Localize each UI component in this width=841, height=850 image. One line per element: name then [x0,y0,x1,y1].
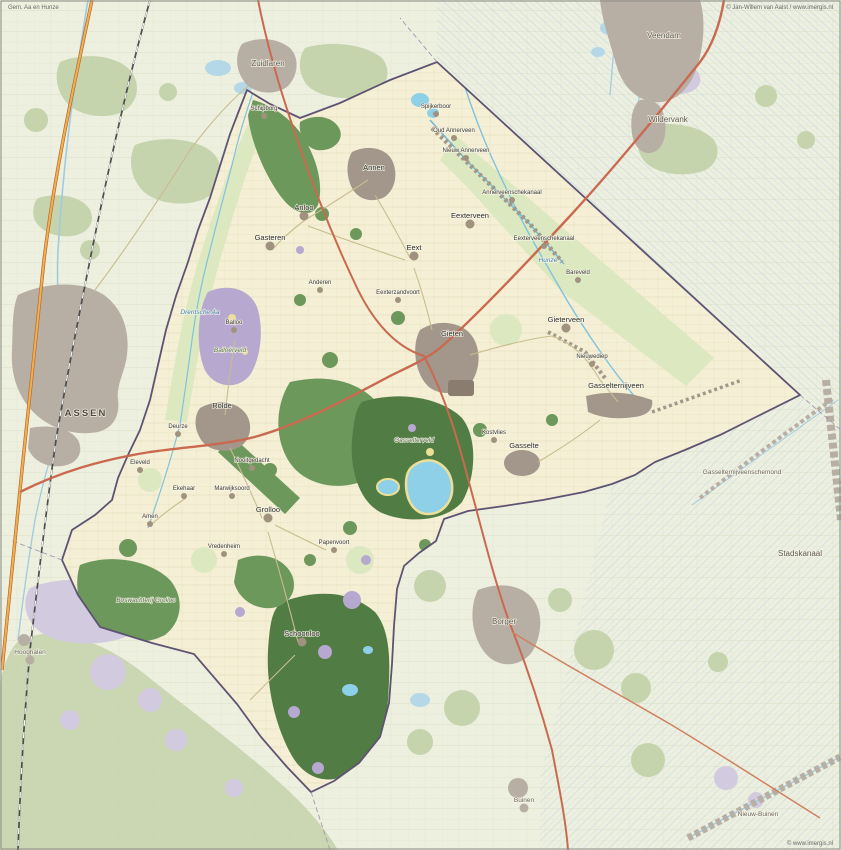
settlement-ekehaar [181,493,187,499]
settlement-marwijksoord [229,493,235,499]
label-drentsche-aa: Drentsche Aa [180,309,220,316]
town-gieten-industry [448,380,474,396]
label-kostvlies: Kostvlies [482,430,506,436]
settlement-anloo [300,212,309,221]
label-wildervank: Wildervank [648,115,689,124]
settlement-eleveld [137,467,143,473]
label-anderen: Anderen [309,280,332,286]
label-stadskanaal: Stadskanaal [778,549,822,558]
settlement-balloo [231,327,237,333]
settlement-gieterveen [562,324,571,333]
label-gasteren: Gasteren [255,233,286,242]
label-schoonloo: Schoonloo [284,629,319,638]
settlement-hooghalen [26,656,35,665]
settlement-nieuwediep [589,361,595,367]
label-gasselternijveen: Gasselternijveen [588,381,644,390]
label-nooitgedacht: Nooitgedacht [234,458,270,464]
label-ballo-rveld: Balloërveld [214,347,247,354]
label--www-imergis-nl: © www.imergis.nl [787,840,833,847]
label-borger: Borger [492,617,516,626]
label-hooghalen: Hooghalen [14,649,46,656]
settlement-eexterveenschekanaal [541,243,547,249]
label-veendam: Veendam [647,31,681,40]
label-amen: Amen [142,514,158,520]
settlement-nooitgedacht [249,465,255,471]
label-marwijksoord: Marwijksoord [214,486,249,492]
label-papenvoort: Papenvoort [319,540,350,546]
label-anloo: Anloo [294,203,313,212]
label-annerveenschekanaal: Annerveenschekanaal [482,190,541,196]
settlement-nieuw-annerveen [463,155,469,161]
label-gasselte: Gasselte [509,441,539,450]
label-buinen: Buinen [514,797,535,804]
label-balloo: Balloo [226,320,243,326]
label-rolde: Rolde [212,401,232,410]
town-hooghalen [18,634,30,646]
settlement-spijkerboor [433,111,439,117]
settlement-annerveenschekanaal [509,197,515,203]
label-nieuwediep: Nieuwediep [576,354,608,360]
town-gasselte [504,450,540,476]
settlement-gasteren [266,242,275,251]
settlement-schoonloo [298,638,307,647]
label-nieuw-buinen: Nieuw-Buinen [738,811,779,818]
settlement-eexterzandvoort [395,297,401,303]
label-schipborg: Schipborg [250,106,277,112]
town-buinen [508,778,528,798]
label-gieten: Gieten [441,329,463,338]
label-ekehaar: Ekehaar [173,486,195,492]
label-eexterzandvoort: Eexterzandvoort [376,290,420,296]
label-assen: ASSEN [65,408,108,419]
label-eleveld: Eleveld [130,460,150,466]
label-nieuw-annerveen: Nieuw Annerveen [442,148,489,154]
label-gem-aa-en-hunze: Gem. Aa en Hunze [8,5,59,11]
topographic-map: Gem. Aa en Hunze© Jan-Willem van Aalst /… [0,0,841,850]
settlement-amen [147,521,153,527]
settlement-grolloo [264,514,273,523]
label-boswachterij-grolloo: Boswachterij Grolloo [116,597,176,604]
label-gasselterveld: Gasselterveld [394,437,434,444]
settlement-deurze [175,431,181,437]
label-eext: Eext [406,243,422,252]
label-deurze: Deurze [168,424,188,430]
settlement-vredenheim [221,551,227,557]
settlement-buinen [520,804,529,813]
settlement-eext [410,252,419,261]
label--jan-willem-van-aalst-www-imergis-nl: © Jan-Willem van Aalst / www.imergis.nl [726,4,833,11]
label-grolloo: Grolloo [256,505,280,514]
settlement-schipborg [261,113,267,119]
settlement-kostvlies [491,437,497,443]
settlement-eexterveen [466,220,475,229]
map-canvas: Gem. Aa en Hunze© Jan-Willem van Aalst /… [0,0,841,850]
label-spijkerboor: Spijkerboor [421,104,451,110]
settlement-anderen [317,287,323,293]
settlement-papenvoort [331,547,337,553]
settlement-oud-annerveen [451,135,457,141]
label-eexterveenschekanaal: Eexterveenschekanaal [514,236,575,242]
label-bareveld: Bareveld [566,270,590,276]
settlement-bareveld [575,277,581,283]
label-annen: Annen [363,163,385,172]
label-gasselternijveenschemond: Gasselternijveenschemond [703,469,782,476]
label-gieterveen: Gieterveen [548,315,585,324]
label-hunze: Hunze [539,257,558,264]
label-zuidlaren: Zuidlaren [251,59,284,68]
label-oud-annerveen: Oud Annerveen [433,128,475,134]
label-vredenheim: Vredenheim [208,544,240,550]
label-eexterveen: Eexterveen [451,211,489,220]
